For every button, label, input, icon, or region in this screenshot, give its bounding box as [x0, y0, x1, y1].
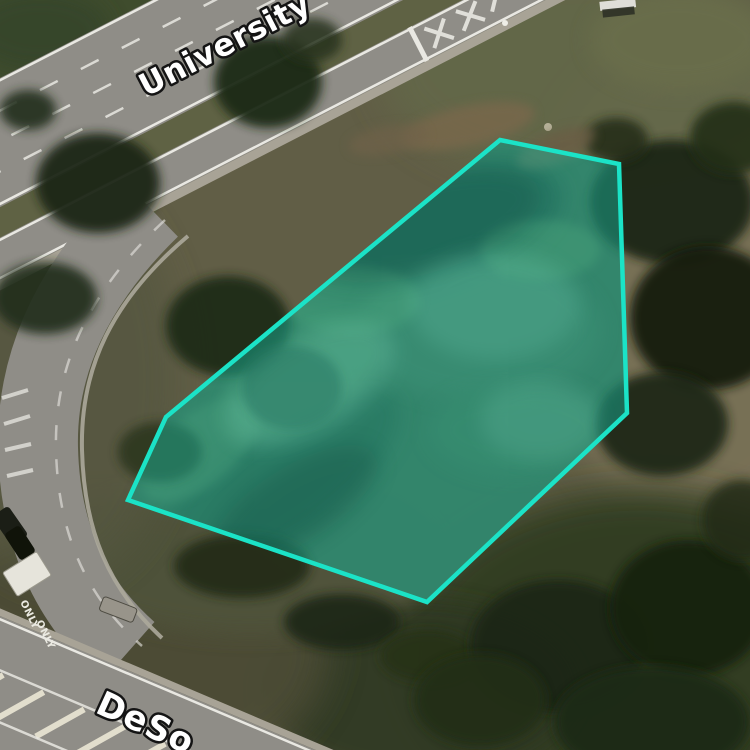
light-rock — [544, 123, 552, 131]
map-viewport[interactable]: ONLY ONLY — [0, 0, 750, 750]
satellite-imagery: ONLY ONLY — [0, 0, 750, 750]
pedestrian-dot — [502, 20, 508, 26]
